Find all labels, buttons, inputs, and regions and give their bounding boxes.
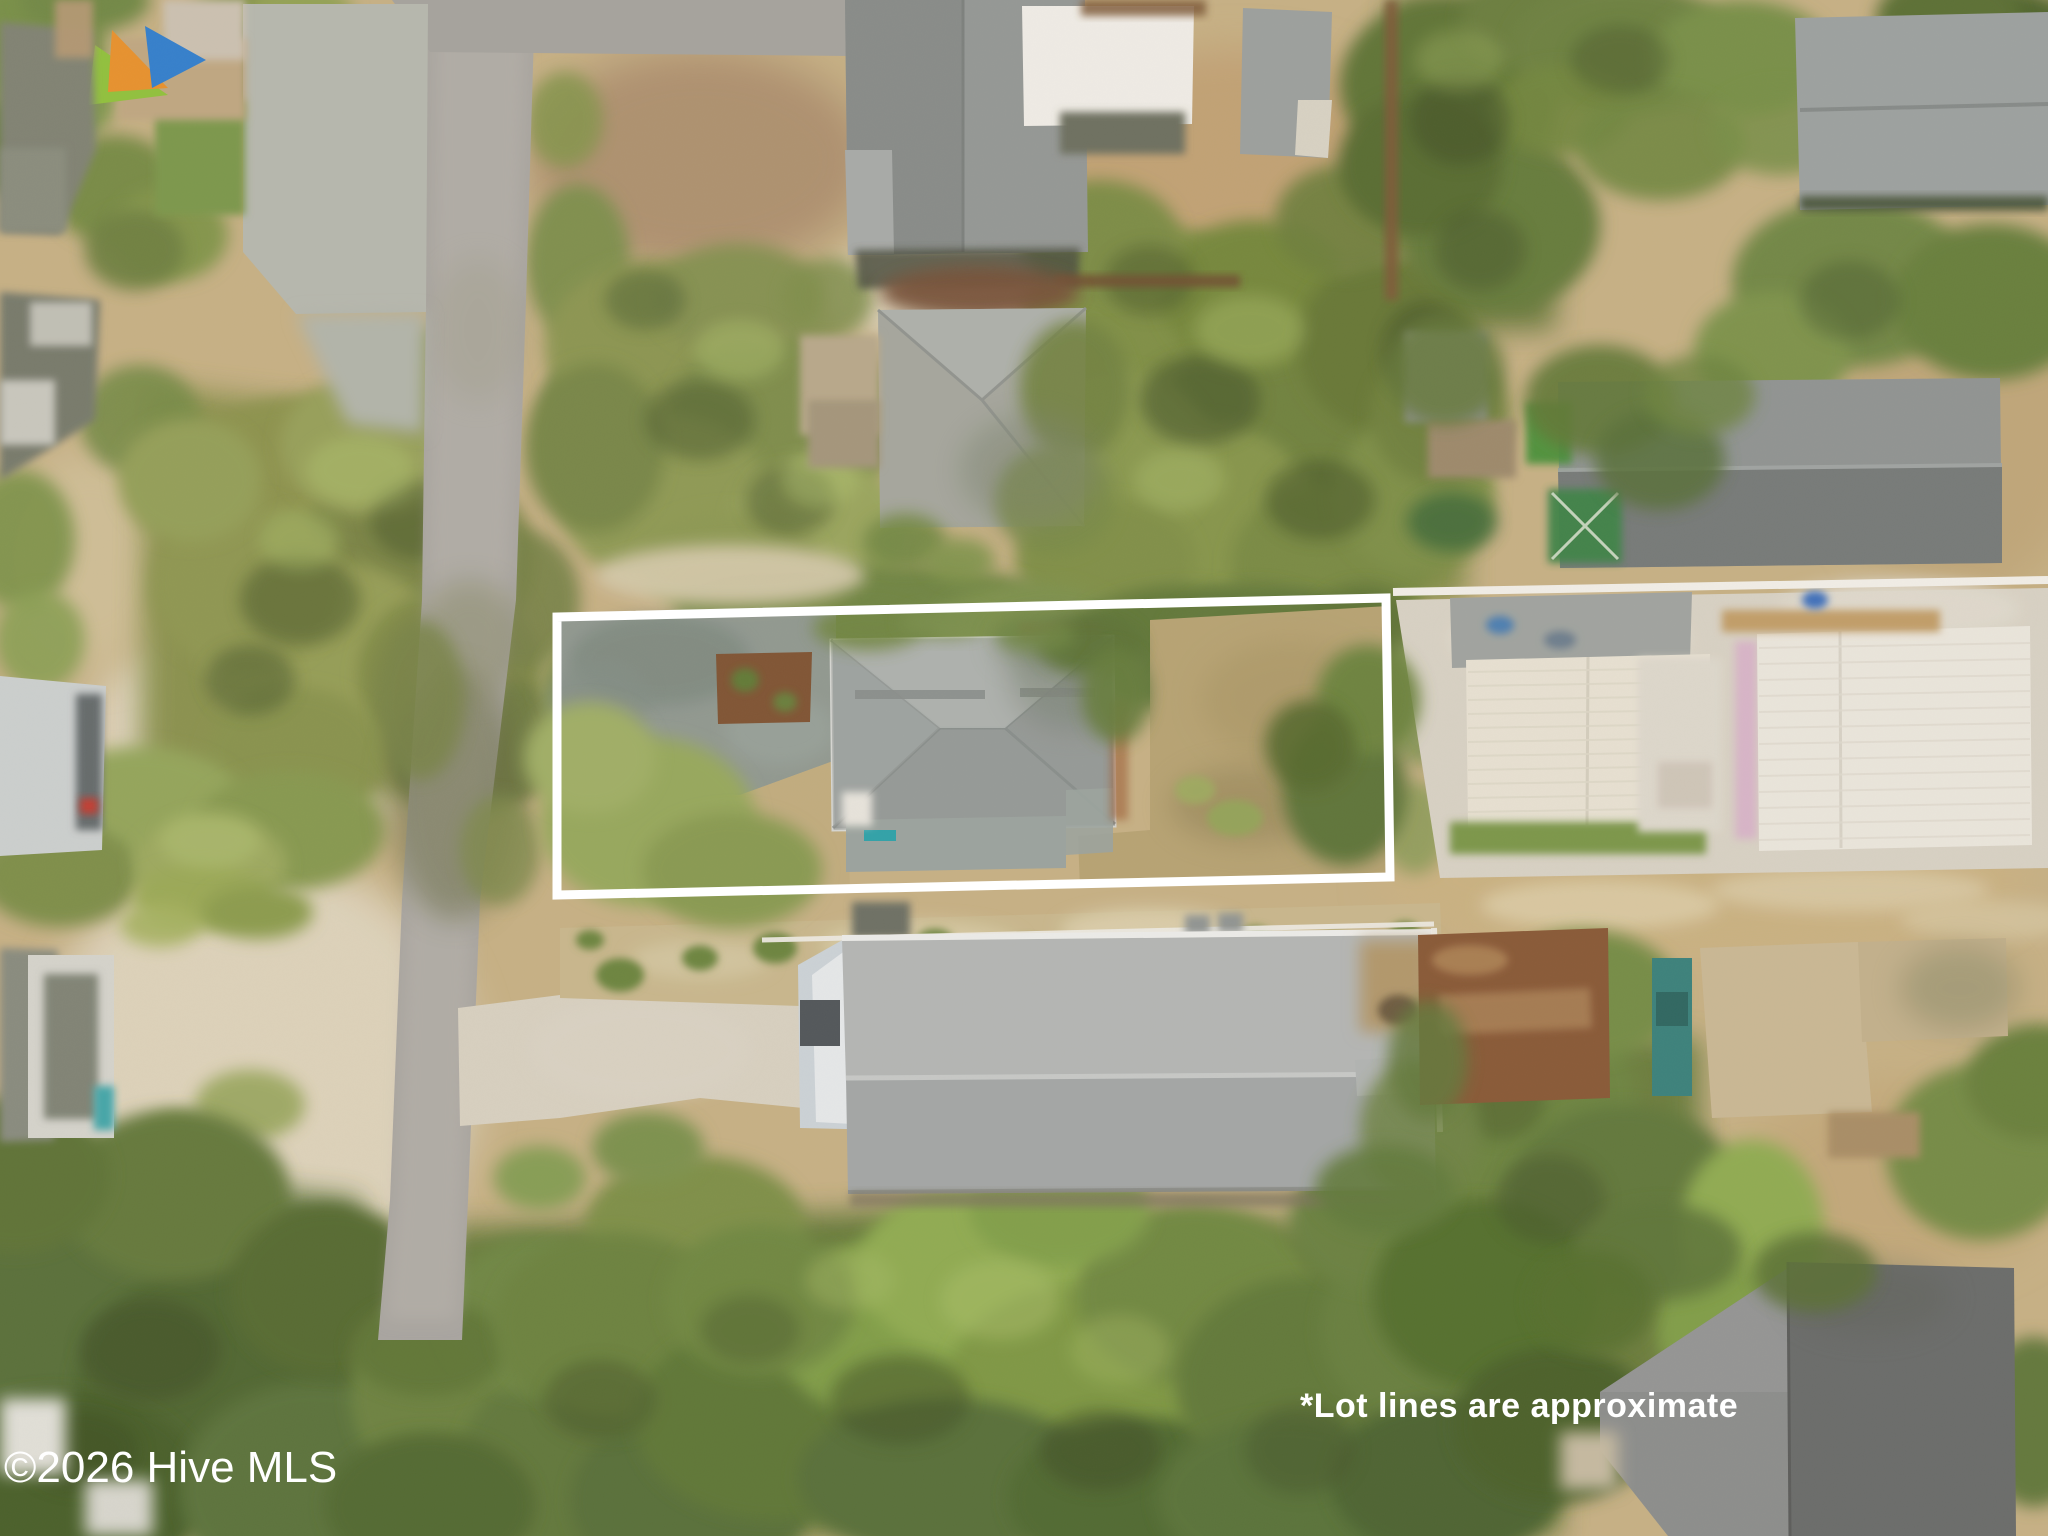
svg-text:©2026 Hive MLS: ©2026 Hive MLS xyxy=(4,1443,337,1492)
svg-text:*Lot lines are approximate: *Lot lines are approximate xyxy=(1300,1387,1738,1425)
